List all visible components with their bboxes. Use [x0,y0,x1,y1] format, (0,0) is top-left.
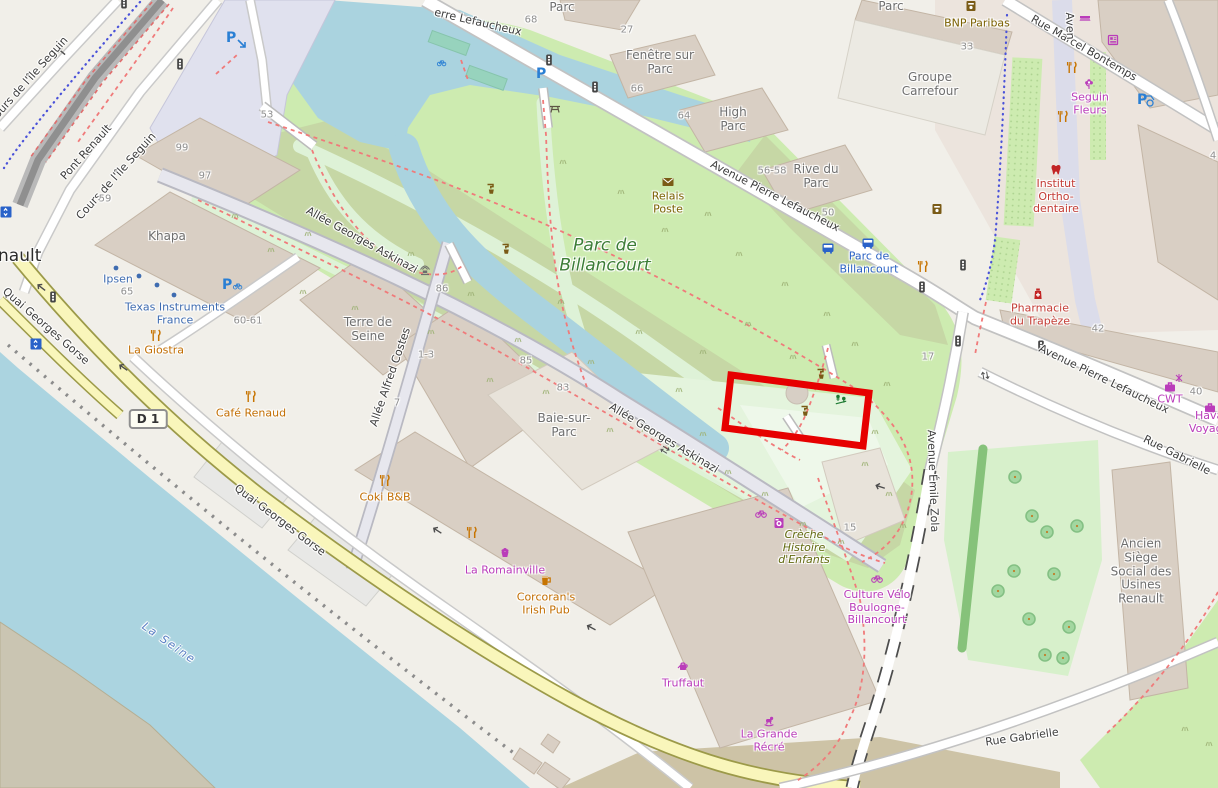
washer-icon [775,518,784,528]
svg-text:P: P [1137,92,1147,108]
elevator-icon [31,339,42,350]
briefcase-icon [1165,383,1175,392]
awning-icon [1080,16,1091,21]
restaurant-icon [247,391,255,402]
map-canvas[interactable]: P P P P [0,0,1218,788]
restaurant-icon [919,261,927,272]
briefcase-icon [1205,404,1215,413]
svg-text:P: P [222,277,232,293]
envelope-icon [663,178,674,186]
road-shield-d1: D 1 [129,409,168,429]
map-viewport[interactable]: P P P P Cours de l'île Seguin Pont Renau… [0,0,1218,788]
restaurant-icon [152,330,160,341]
elevator-icon [1,207,12,218]
bank-icon [933,204,942,214]
svg-text:P: P [226,30,236,46]
svg-text:P: P [536,66,546,82]
bank-icon [967,1,976,11]
